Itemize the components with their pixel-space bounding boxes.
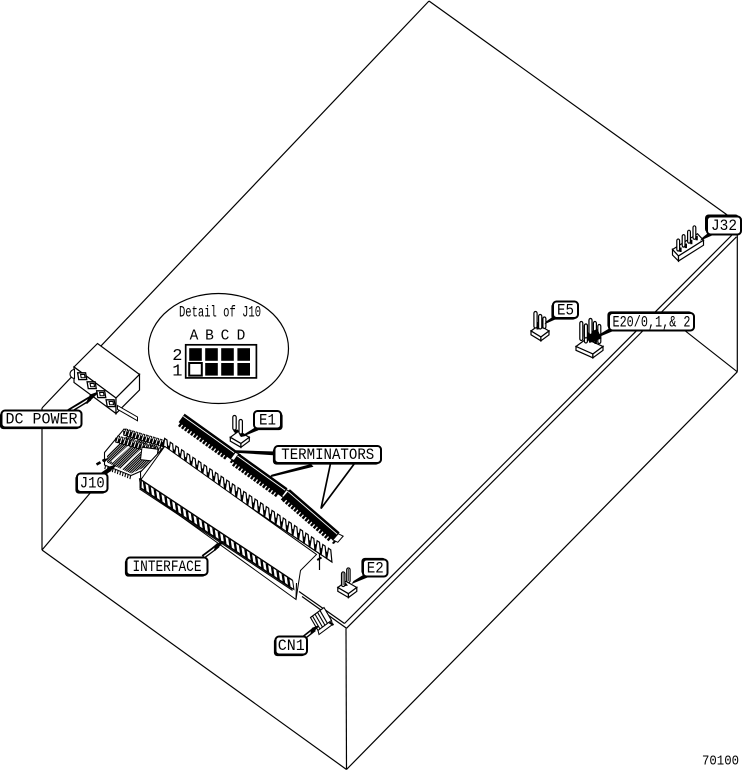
svg-text:1: 1 [172, 362, 182, 381]
svg-text:E5: E5 [557, 301, 574, 319]
svg-text:E1: E1 [259, 411, 276, 429]
svg-text:A: A [190, 329, 199, 345]
svg-text:D: D [237, 329, 246, 345]
svg-text:E2: E2 [367, 560, 384, 578]
svg-text:CN1: CN1 [278, 637, 305, 655]
svg-text:70100: 70100 [702, 754, 739, 770]
svg-text:C: C [221, 329, 230, 345]
svg-text:TERMINATORS: TERMINATORS [281, 446, 374, 464]
svg-text:J32: J32 [711, 217, 737, 235]
svg-text:DC POWER: DC POWER [6, 411, 78, 429]
svg-text:Detail of J10: Detail of J10 [179, 304, 261, 322]
svg-text:E20/0,1,& 2: E20/0,1,& 2 [613, 313, 691, 331]
svg-text:B: B [205, 329, 214, 345]
svg-text:J10: J10 [80, 474, 105, 492]
svg-text:INTERFACE: INTERFACE [133, 558, 202, 576]
